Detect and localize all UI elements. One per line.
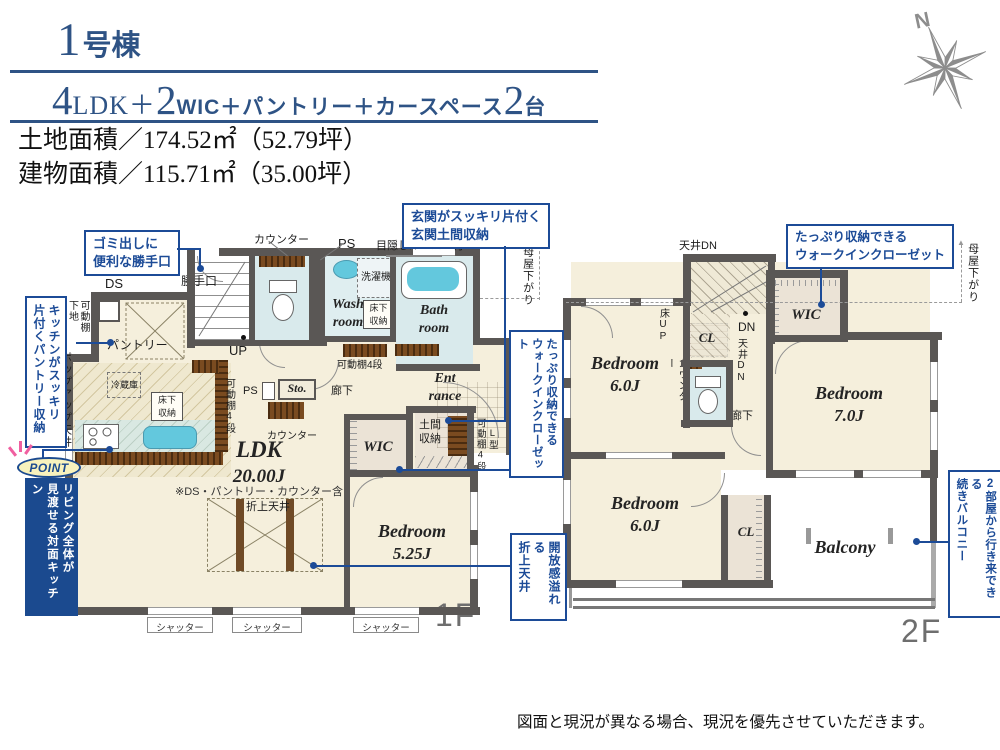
callout-wic-2f: たっぷり収納できるウォークインクローゼット bbox=[786, 224, 954, 269]
window-opening bbox=[563, 340, 571, 378]
fridge-label: 冷蔵庫 bbox=[111, 380, 138, 391]
ldk-note: ※DS・パントリー・カウンター含 bbox=[175, 486, 343, 499]
bath-room-label: Bathroom bbox=[405, 302, 463, 337]
wall-segment bbox=[766, 270, 773, 342]
window-opening bbox=[863, 470, 921, 478]
callout-genkan-dot bbox=[445, 417, 452, 424]
bathtub-icon bbox=[401, 261, 467, 299]
balcony-label: Balcony bbox=[789, 536, 901, 559]
callout-genkan-leader bbox=[504, 246, 506, 422]
window-opening bbox=[616, 580, 682, 588]
window-opening bbox=[606, 452, 672, 459]
callout-coffered: 開放感溢れる折上天井 bbox=[510, 533, 567, 621]
wall-segment bbox=[473, 248, 480, 345]
point-dot bbox=[106, 446, 113, 453]
callout-wic2f-leader bbox=[820, 268, 822, 304]
cl2-label: CL bbox=[729, 524, 763, 540]
bedroom-1f-label: Bedroom 5.25J bbox=[363, 520, 461, 564]
balcony-edge-line bbox=[573, 606, 935, 609]
sto-label: Sto. bbox=[280, 381, 314, 396]
hallway-label-1f: 廊下 bbox=[331, 385, 353, 398]
ceiling-dn-side-label: 天井DN bbox=[735, 338, 747, 394]
wall-segment bbox=[764, 495, 771, 583]
page-title: 1号棟 bbox=[57, 12, 141, 68]
louver-underline bbox=[386, 255, 442, 257]
wall-segment bbox=[930, 332, 938, 478]
ceiling-dn-top-label: 天井DN bbox=[679, 240, 717, 253]
stairs-2f bbox=[691, 262, 768, 314]
point-leader bbox=[42, 449, 110, 451]
ds-duct-box bbox=[98, 300, 120, 322]
wash-sink-icon bbox=[333, 260, 360, 279]
underfloor-storage-kitchen: 床下収納 bbox=[151, 392, 183, 421]
wall-segment bbox=[309, 248, 325, 346]
callout-backdoor-dot bbox=[197, 265, 204, 272]
shutter-box: シャッター bbox=[147, 617, 213, 633]
wall-segment bbox=[683, 306, 690, 428]
callout-wic1f-dot bbox=[396, 466, 403, 473]
wall-segment bbox=[406, 406, 413, 477]
bed1-label: Bedroom6.0J bbox=[569, 352, 681, 396]
balcony-edge-line bbox=[573, 598, 935, 601]
window-opening bbox=[470, 492, 478, 530]
moya-arrow-2f: ▲ bbox=[957, 238, 965, 248]
floor-plan-sheet: 1号棟 4LDK＋2WIC＋パントリー＋カースペース2台 土地面積／174.52… bbox=[0, 0, 1000, 750]
cl1-label: CL bbox=[691, 330, 723, 346]
wall-segment bbox=[681, 420, 733, 427]
dn-label: DN bbox=[738, 320, 755, 334]
moya-dash-1f-h bbox=[480, 298, 540, 299]
wall-segment bbox=[683, 254, 691, 304]
shelf4-right-label: 可動棚4段 bbox=[474, 418, 485, 472]
wic-2f-label: WIC bbox=[781, 306, 831, 325]
callout-balcony: 2部屋から行き来できる続きバルコニー bbox=[948, 470, 1000, 618]
callout-wic2f-dot bbox=[818, 301, 825, 308]
wall-segment bbox=[408, 406, 476, 413]
wall-segment bbox=[325, 336, 392, 342]
coffered-ceiling-box: 折上天井 bbox=[207, 498, 323, 572]
floor-up-label: 床UP bbox=[657, 308, 669, 352]
doma-label: 土間収納 bbox=[419, 418, 441, 447]
hallway-label-2f: 廊下 bbox=[731, 410, 753, 423]
callout-backdoor-leader bbox=[177, 248, 201, 250]
callout-backdoor: ゴミ出しに便利な勝手口 bbox=[84, 230, 180, 276]
compass-rose-icon: N bbox=[885, 2, 1000, 122]
l-type-label: L型 bbox=[486, 428, 497, 454]
callout-pantry-leader bbox=[76, 342, 110, 344]
wall-segment bbox=[344, 414, 350, 476]
point-badge-label: POINT bbox=[29, 461, 68, 475]
fridge-box: 冷蔵庫 bbox=[107, 372, 141, 398]
compass: N bbox=[885, 2, 1000, 122]
bed2-label: Bedroom7.0J bbox=[793, 382, 905, 426]
window-opening bbox=[563, 480, 571, 524]
wall-segment bbox=[91, 292, 99, 362]
wall-segment bbox=[726, 360, 733, 427]
wall-segment bbox=[390, 248, 396, 342]
ceiling-beam bbox=[236, 499, 244, 571]
wall-segment bbox=[840, 270, 848, 340]
window-opening bbox=[233, 607, 301, 615]
wall-segment bbox=[683, 254, 776, 262]
callout-wic-1f: たっぷり収納できるウォークインクローゼット bbox=[509, 330, 564, 478]
wic-1f-label: WIC bbox=[351, 438, 405, 457]
building-number: 1 bbox=[57, 12, 81, 68]
coffered-ceiling-label: 折上天井 bbox=[246, 501, 290, 514]
counter-top-label: カウンター bbox=[254, 234, 309, 247]
wall-segment bbox=[721, 495, 728, 583]
spec-wic-pantry: WIC＋パントリー＋カースペース bbox=[176, 95, 503, 120]
callout-coffered-leader bbox=[314, 565, 511, 567]
spec-num-ldk: 4 bbox=[52, 76, 73, 125]
window-opening bbox=[796, 470, 854, 478]
disclaimer: 図面と現況が異なる場合、現況を優先させていただきます。 bbox=[517, 714, 934, 733]
moya-label-2f: 母屋下がり bbox=[966, 243, 979, 311]
callout-balcony-leader bbox=[918, 541, 950, 543]
wall-segment bbox=[187, 340, 327, 346]
ps-box bbox=[262, 382, 275, 400]
wall-segment bbox=[766, 270, 848, 278]
callout-pantry: キッチンがスッキリ片付くパントリー収納 bbox=[25, 296, 67, 448]
point-box: リビング全体が見渡せる対面キッチン bbox=[25, 478, 78, 616]
wall-segment bbox=[344, 470, 478, 477]
entrance-shelf bbox=[395, 344, 439, 356]
callout-genkan-leader bbox=[450, 420, 506, 422]
window-opening bbox=[355, 607, 419, 615]
toilet-counter bbox=[259, 256, 305, 267]
callout-genkan-storage: 玄関がスッキリ片付く玄関土間収納 bbox=[402, 203, 550, 249]
header-rule-bottom bbox=[10, 120, 598, 123]
wall-segment bbox=[91, 292, 195, 300]
ps2-label: PS bbox=[243, 385, 258, 398]
moya-label-1f: 母屋下がり bbox=[521, 246, 534, 314]
shutter-box: シャッター bbox=[232, 617, 302, 633]
callout-wic1f-leader bbox=[400, 469, 510, 471]
shelf4-wash-label: 可動棚4段 bbox=[337, 360, 383, 372]
header-rule-top bbox=[10, 70, 598, 73]
window-opening bbox=[930, 412, 938, 450]
wic-2f-hangers-top bbox=[775, 280, 838, 286]
land-area: 土地面積／174.52㎡（52.79坪） bbox=[18, 126, 368, 156]
balcony-wall-dark bbox=[930, 478, 937, 542]
ds-label: DS bbox=[105, 276, 123, 292]
callout-coffered-dot bbox=[310, 562, 317, 569]
wall-segment bbox=[766, 342, 773, 478]
wall-segment bbox=[840, 332, 942, 340]
moya-dash-2f-h bbox=[566, 302, 962, 303]
wall-segment bbox=[344, 414, 412, 420]
point-badge: POINT bbox=[17, 457, 81, 478]
hall-shelf bbox=[343, 344, 387, 357]
shutter-box: シャッター bbox=[353, 617, 419, 633]
pantry-label: パントリー bbox=[107, 338, 168, 352]
moya-dash-2f bbox=[961, 245, 962, 302]
wall-segment bbox=[396, 364, 480, 371]
ldk-counter bbox=[268, 402, 304, 419]
floor1-plan: 折上天井 DS 勝手口 洗濯機 Washroom 土間 床下収納 Bathroo… bbox=[63, 240, 548, 640]
entrance-label: Entrance bbox=[415, 370, 475, 405]
spec-num-car: 2 bbox=[504, 76, 525, 125]
spec-car-suffix: 台 bbox=[524, 95, 545, 120]
window-opening bbox=[930, 362, 938, 400]
layout-spec: 4LDK＋2WIC＋パントリー＋カースペース2台 bbox=[52, 76, 545, 120]
doma-hatch bbox=[415, 456, 467, 468]
building-area: 建物面積／115.71㎡（35.00坪） bbox=[18, 160, 367, 190]
window-opening bbox=[470, 545, 478, 579]
wall-segment bbox=[249, 248, 255, 346]
wall-segment bbox=[344, 470, 350, 615]
wall-segment bbox=[773, 335, 848, 342]
building-suffix: 号棟 bbox=[83, 29, 141, 64]
compass-north-label: N bbox=[913, 8, 933, 34]
washer-label: 洗濯機 bbox=[361, 272, 391, 284]
bed3-label: Bedroom6.0J bbox=[589, 492, 701, 536]
kitchen-sink-icon bbox=[143, 426, 197, 449]
wall-segment bbox=[470, 465, 478, 615]
callout-pantry-dot bbox=[107, 339, 114, 346]
wall-segment bbox=[467, 406, 474, 477]
kitchen-counter-front bbox=[75, 452, 223, 465]
pantry-shelf bbox=[192, 360, 219, 373]
stove-icon bbox=[83, 424, 119, 449]
callout-balcony-dot bbox=[913, 538, 920, 545]
floor2-label: 2F bbox=[901, 612, 942, 650]
moya-dash-1f bbox=[539, 246, 540, 300]
spec-num-wic: 2 bbox=[156, 76, 177, 125]
window-opening bbox=[148, 607, 212, 615]
ldk-label: LDK 20.00J bbox=[213, 436, 305, 489]
window-opening bbox=[563, 388, 571, 418]
shelf4-left-label: 可動棚4段 bbox=[223, 378, 235, 436]
dn-dot bbox=[743, 311, 748, 316]
spec-ldk: LDK＋ bbox=[73, 90, 156, 121]
